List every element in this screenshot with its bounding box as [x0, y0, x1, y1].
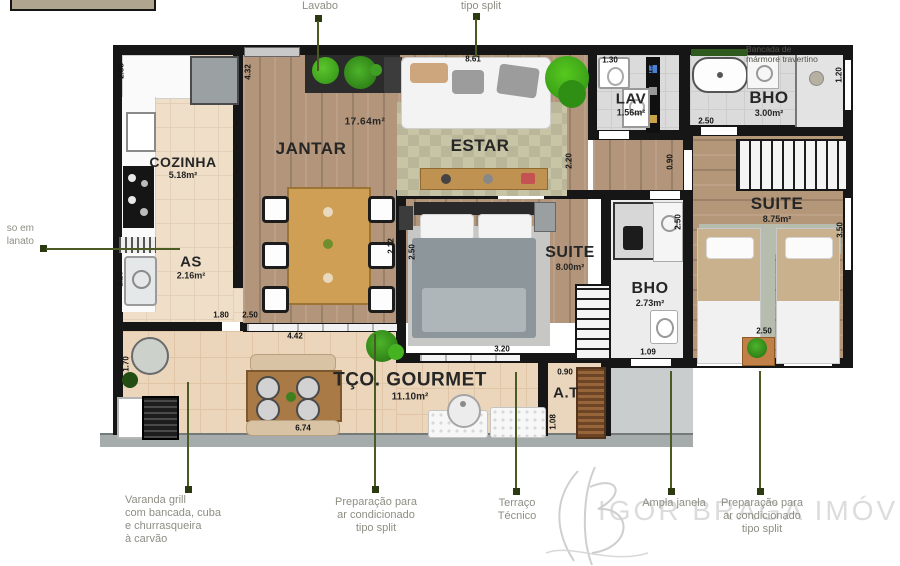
decor-icon	[649, 87, 657, 95]
callout-terraco-tecnico: Terraço Técnico	[490, 497, 544, 523]
room-label-bho1: BHO 3.00m²	[749, 88, 788, 118]
room-area: 3.00m²	[749, 108, 788, 118]
room-area-jantar: 17.64m²	[345, 117, 386, 128]
nightstand	[399, 206, 413, 230]
grill-plate-icon	[296, 398, 320, 422]
dimension: 2.88	[117, 63, 126, 79]
dimension: 2.20	[565, 153, 574, 169]
room-label-gourmet: TÇO. GOURMET 11.10m²	[333, 370, 487, 403]
callout-ampla-janela: Ampla janela	[636, 497, 712, 510]
planter-ledge	[691, 49, 748, 56]
fridge-cabinet	[190, 56, 239, 105]
callout-line	[515, 372, 517, 488]
dimension: 2.50	[698, 117, 714, 126]
dimension: 2.12	[387, 238, 396, 254]
dimension: 2.50	[242, 311, 258, 320]
decor-icon	[441, 174, 451, 184]
sofa-cushion	[496, 63, 540, 98]
room-area: 2.16m²	[177, 271, 206, 281]
door-opening	[684, 150, 692, 190]
bathtub	[692, 57, 748, 93]
tech-terrace-slab	[611, 368, 693, 436]
dimension: 1.20	[116, 271, 125, 287]
room-name: LAV	[616, 91, 646, 108]
callout-bancada: Bancada de mármore travertino	[746, 44, 868, 64]
toilet-bowl-icon	[656, 318, 674, 338]
room-name: SUITE	[545, 244, 595, 261]
bench-module	[490, 407, 546, 438]
grill-plate-icon	[256, 376, 280, 400]
room-area: 5.18m²	[149, 170, 216, 180]
chair	[262, 286, 289, 313]
window	[845, 198, 851, 270]
toilet	[650, 310, 678, 344]
plant-icon	[558, 80, 586, 108]
bed-single	[776, 228, 840, 364]
shower-area	[613, 202, 655, 260]
bed-double	[412, 238, 536, 338]
door-opening	[599, 131, 629, 139]
shower-items	[623, 226, 643, 250]
dimension: 8.61	[465, 55, 481, 64]
plant-icon	[286, 392, 296, 402]
chair	[262, 242, 289, 269]
callout-prep-ac-right: Preparação para ar condicionado tipo spl…	[714, 497, 810, 536]
room-label-jantar: JANTAR	[276, 139, 347, 159]
callout-line	[46, 248, 180, 250]
equipment-louver	[576, 367, 606, 439]
room-label-lav: LAV 1.56m²	[616, 91, 646, 118]
window	[845, 60, 851, 110]
dimension: 2.50	[756, 327, 772, 336]
bed-sheet	[422, 288, 526, 332]
console-table	[420, 168, 548, 190]
room-label-bho2: BHO 2.73m²	[631, 280, 668, 308]
sink-bowl-icon	[756, 65, 773, 82]
dimension: 1.08	[549, 414, 558, 430]
callout-line	[374, 334, 376, 486]
watermark-logo	[540, 465, 655, 566]
drain-icon	[809, 71, 824, 86]
dimension: 1.20	[835, 67, 844, 83]
table-decor	[323, 207, 333, 217]
callout-prep-ac-left: Preparação para ar condicionado tipo spl…	[328, 496, 424, 535]
callout-marker	[668, 488, 675, 495]
chair	[368, 196, 395, 223]
closet	[575, 284, 611, 362]
room-name: BHO	[631, 280, 668, 297]
dimension: 2.50	[408, 244, 417, 260]
chair	[368, 286, 395, 313]
callout-marker	[513, 488, 520, 495]
laundry-tub	[131, 337, 169, 375]
callout-varanda-grill: Varanda grill com bancada, cuba e churra…	[125, 494, 241, 546]
sofa-cushion	[410, 63, 448, 83]
washing-machine	[124, 256, 157, 306]
table-decor	[323, 273, 333, 283]
washer-door-icon	[132, 270, 151, 289]
callout-line	[317, 21, 319, 71]
wall	[588, 55, 597, 140]
room-name: AS	[180, 254, 202, 271]
dimension: 1.09	[640, 348, 656, 357]
room-label-at: A.T	[553, 385, 579, 402]
dimension: 1.20	[646, 58, 655, 74]
sliding-door	[247, 324, 397, 331]
bbq-table	[246, 370, 342, 422]
chair	[262, 196, 289, 223]
room-name: ESTAR	[451, 136, 510, 155]
pillow	[785, 237, 833, 259]
dimension: 1.70	[122, 356, 131, 372]
burner-icon	[140, 208, 148, 216]
decor-icon	[521, 173, 535, 184]
room-name: COZINHA	[149, 154, 216, 170]
door-opening	[650, 191, 680, 199]
pillow	[420, 214, 474, 240]
sliding-window	[420, 355, 520, 361]
dimension: 0.90	[666, 154, 675, 170]
decor-icon	[649, 115, 657, 123]
dimension: 1.30	[602, 56, 618, 65]
table-decor	[323, 239, 333, 249]
room-label-as: AS 2.16m²	[177, 254, 206, 281]
kitchen-sink	[126, 112, 156, 152]
room-area: 17.64m²	[345, 117, 386, 128]
window	[244, 47, 300, 57]
wide-window	[631, 359, 671, 366]
dimension: 6.74	[295, 424, 311, 433]
decor-icon	[483, 174, 493, 184]
dimension: 3.20	[494, 345, 510, 354]
callout-line	[475, 19, 477, 57]
room-name: A.T	[553, 385, 579, 402]
service-cabinet	[117, 397, 145, 439]
room-name: TÇO. GOURMET	[333, 370, 487, 391]
plant-icon	[122, 372, 138, 388]
kitchen-mat	[119, 237, 156, 253]
dimension: 2.50	[674, 214, 683, 230]
callout-line	[759, 371, 761, 488]
cropped-legend-box	[10, 0, 156, 11]
room-area: 11.10m²	[333, 392, 487, 403]
kitchen-counter	[122, 55, 192, 99]
callout-tipo-split: tipo split	[450, 0, 512, 13]
room-area: 2.73m²	[631, 298, 668, 308]
dimension: 3.50	[836, 222, 845, 238]
pillow	[706, 237, 754, 259]
room-label-estar: ESTAR	[451, 136, 510, 156]
door-opening	[701, 127, 737, 135]
burner-icon	[141, 180, 148, 187]
callout-marker	[372, 486, 379, 493]
sofa	[401, 57, 551, 129]
room-label-suite2: SUITE 8.75m²	[751, 194, 804, 224]
room-area: 8.00m²	[545, 262, 595, 272]
charcoal-grill	[142, 396, 179, 440]
drain-icon	[717, 72, 723, 78]
vanity-sink	[653, 202, 683, 262]
plant-icon	[388, 344, 404, 360]
callout-marker	[757, 488, 764, 495]
door-opening	[222, 322, 240, 331]
callout-line	[187, 382, 189, 486]
room-name: JANTAR	[276, 139, 347, 158]
callout-piso-fragment: so em lanato	[0, 222, 34, 248]
room-label-cozinha: COZINHA 5.18m²	[149, 154, 216, 180]
room-label-suite1: SUITE 8.00m²	[545, 244, 595, 272]
room-name: BHO	[749, 88, 788, 107]
callout-line	[670, 371, 672, 488]
toilet-bowl-icon	[607, 67, 624, 86]
dimension: 0.90	[557, 368, 573, 377]
wardrobe	[736, 139, 848, 191]
plant-icon	[370, 64, 382, 76]
burner-icon	[128, 196, 136, 204]
tv-cabinet	[384, 57, 402, 93]
dining-table	[287, 187, 371, 305]
dimension: 1.80	[213, 311, 229, 320]
room-area: 8.75m²	[751, 214, 804, 224]
grill-plate-icon	[296, 376, 320, 400]
bench	[246, 420, 340, 436]
wall	[679, 48, 690, 138]
plant-icon	[747, 338, 767, 358]
floorplan-canvas: IGOR BRAGA IMÓVEIS	[0, 0, 900, 566]
dimension: 4.32	[244, 64, 253, 80]
callout-lavabo: Lavabo	[292, 0, 348, 13]
room-area: 1.56m²	[616, 108, 646, 118]
grill-plate-icon	[256, 398, 280, 422]
burner-icon	[128, 174, 136, 182]
room-name: SUITE	[751, 194, 804, 213]
sofa-cushion	[452, 70, 484, 94]
callout-marker	[185, 486, 192, 493]
nightstand	[534, 202, 556, 232]
dimension: 4.42	[287, 332, 303, 341]
pillow	[478, 214, 532, 240]
